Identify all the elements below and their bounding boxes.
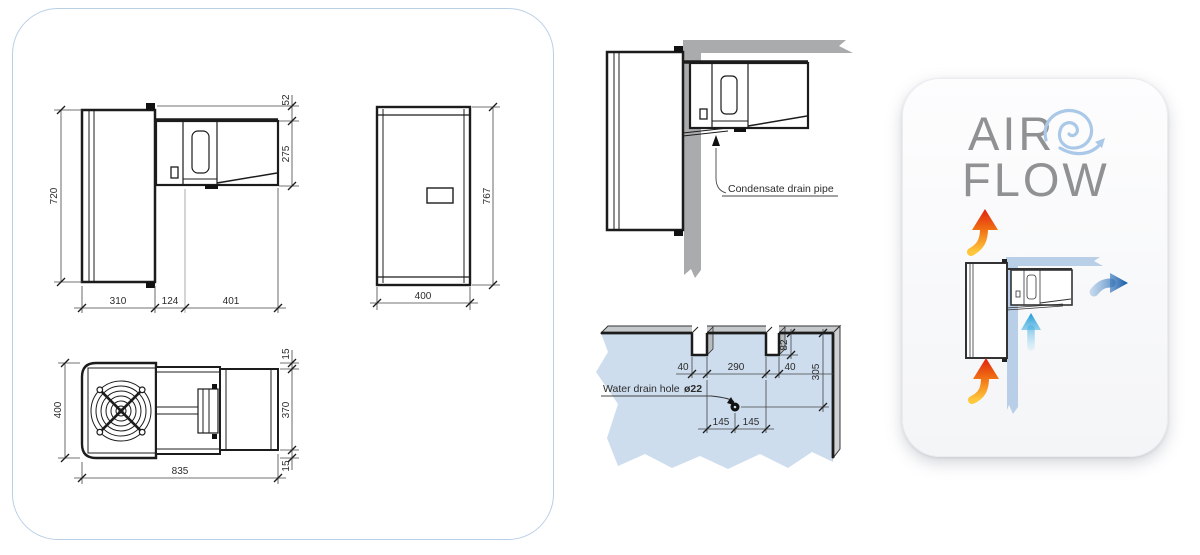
dim-front-width: 400 — [415, 291, 432, 302]
wall-panel — [607, 52, 683, 230]
dim-hole-left: 145 — [713, 417, 730, 428]
dim-hole-right: 145 — [743, 417, 760, 428]
dim-margin-bottom: 15 — [281, 460, 292, 472]
drain-stub — [700, 109, 707, 119]
dim-gap-middle: 124 — [162, 296, 179, 307]
dim-height: 720 — [49, 187, 60, 204]
wall-beam-horizontal — [1006, 257, 1103, 266]
dim-margin-top: 15 — [281, 348, 292, 360]
mounting-clip — [146, 282, 155, 288]
air-outlet-right-arrow-icon — [1094, 273, 1128, 293]
airflow-diagram: AIR FLOW — [962, 107, 1128, 414]
hot-air-up-arrow-top-icon — [971, 209, 998, 252]
mounting-clip — [146, 103, 155, 110]
installation-drawing: Condensate drain pipe — [607, 40, 853, 278]
ceiling-beam — [683, 40, 853, 53]
wall-surface — [596, 333, 833, 469]
drawings-overlay: 720 52 275 310 124 401 — [0, 0, 1200, 555]
cold-air-up-arrow-icon — [1021, 313, 1041, 347]
dim-notch-left: 40 — [677, 362, 689, 373]
hot-air-up-arrow-bottom-icon — [972, 358, 999, 400]
compressor — [198, 389, 218, 433]
dim-unit-width: 370 — [281, 401, 292, 418]
dim-front-height: 767 — [482, 187, 493, 204]
dim-length: 835 — [172, 466, 189, 477]
dim-notch-right: 40 — [784, 362, 796, 373]
technical-drawing-sheet: 720 52 275 310 124 401 — [0, 0, 1200, 555]
condenser-box — [220, 369, 278, 450]
wall-panel — [82, 110, 155, 282]
dim-unit-depth: 401 — [223, 296, 240, 307]
dim-wall-depth: 310 — [110, 296, 127, 307]
side-view-drawing: 720 52 275 310 124 401 — [49, 94, 299, 313]
front-view-drawing: 767 400 — [370, 103, 500, 310]
drain-callout: Water drain hole — [603, 383, 680, 395]
condensate-callout: Condensate drain pipe — [728, 183, 834, 195]
top-view-drawing: 400 835 15 370 15 — [53, 348, 299, 484]
dim-gap-top: 52 — [281, 94, 292, 106]
wall-panel — [966, 263, 1007, 358]
dim-notch-depth: 82 — [779, 339, 790, 351]
drain-diameter: ø22 — [684, 383, 702, 395]
airflow-title-line2: FLOW — [962, 153, 1110, 206]
drain-stub — [171, 167, 178, 178]
callout-arrow-icon — [712, 135, 720, 146]
dim-depth: 400 — [53, 401, 64, 418]
wall-cutout-drawing: Water drain hole ø22 — [596, 324, 840, 469]
dim-unit-height: 275 — [281, 145, 292, 162]
drain-stub — [1016, 291, 1020, 297]
unit-front — [377, 107, 470, 285]
dim-notch-span: 290 — [728, 362, 745, 373]
dim-hole-offset: 305 — [811, 363, 822, 380]
